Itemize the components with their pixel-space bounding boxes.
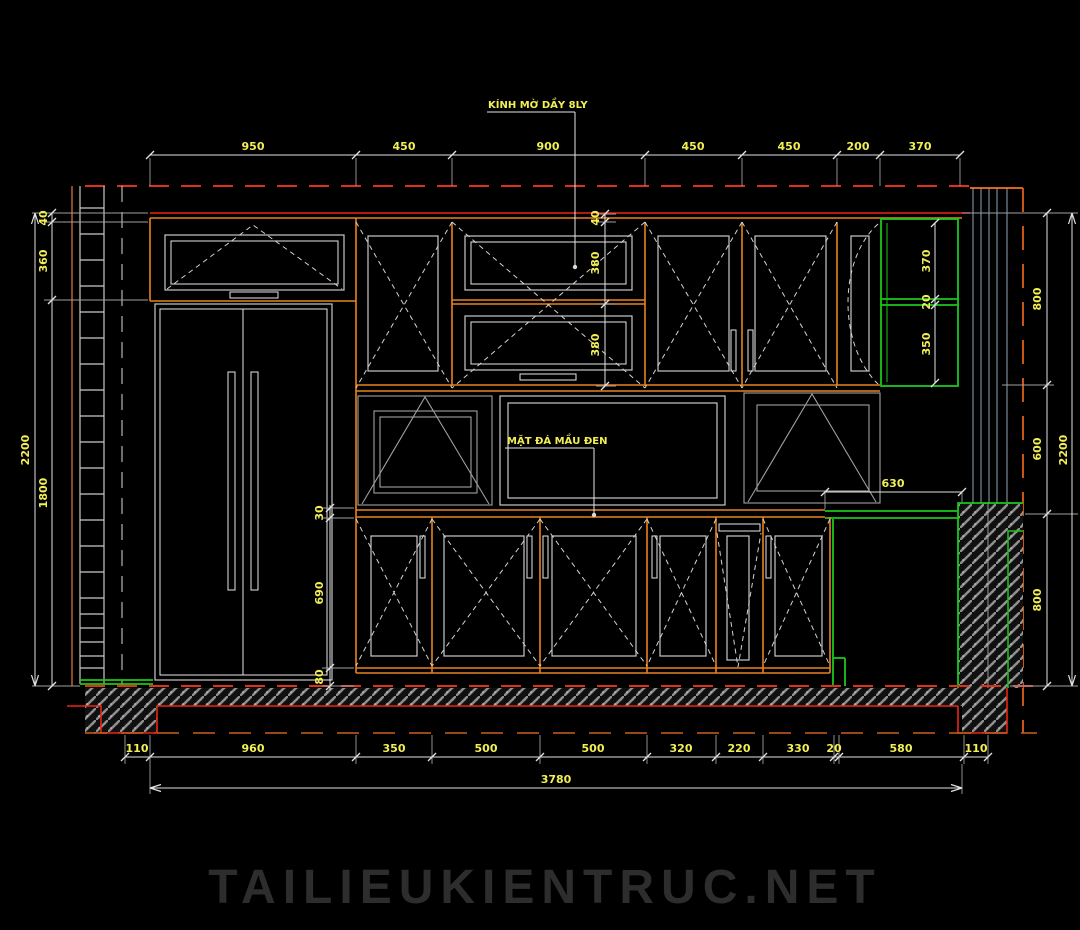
left-dimension-chain: 40 360 1800 2200: [19, 209, 148, 690]
door-handle: [228, 372, 235, 590]
green-base-corner: [833, 519, 845, 686]
dim-label: 600: [1031, 437, 1044, 460]
pullout-basket-220: [717, 524, 761, 667]
top-dimension-chain: 950 450 900 450 450 200 370: [146, 140, 964, 186]
door-handle: [719, 524, 760, 531]
base-height-dims: 30 690 80: [313, 504, 354, 690]
dim-label: 450: [682, 140, 705, 153]
wall-hatch-rungs: [80, 208, 104, 668]
door-handle: [520, 374, 576, 380]
dim-label: 500: [582, 742, 605, 755]
dim-label: 40: [589, 210, 602, 226]
dim-label: 360: [37, 249, 50, 272]
wall-edge-lines: [85, 186, 1023, 733]
screenshot-root: 370 20 350 630: [0, 0, 1080, 930]
base-door-320: [647, 519, 716, 666]
stone-note-label: MẶT ĐÁ MẦU ĐEN: [507, 433, 607, 447]
total-width-dimension: 3780: [150, 764, 962, 794]
dim-label: 350: [383, 742, 406, 755]
tall-cabinet: [155, 304, 332, 680]
dim-label: 900: [537, 140, 560, 153]
bottom-dimension-chain: 110 960 350 500 500 320 220 330 20 580 1…: [121, 735, 992, 764]
door-handle: [251, 372, 258, 590]
dim-label: 800: [1031, 588, 1044, 611]
open-shelf-unit: 370 20 350: [881, 219, 958, 387]
dim-label: 2200: [1057, 434, 1070, 465]
frosted-flipup-door-left: [165, 225, 344, 298]
left-wall-section: [72, 186, 153, 686]
door-handle: [748, 330, 753, 371]
dim-label: 580: [890, 742, 913, 755]
backsplash-panels: [358, 393, 880, 505]
door-handle: [652, 536, 657, 578]
wall-door-450-left: [356, 222, 452, 388]
base-door-350: [356, 519, 432, 666]
dim-label: 950: [242, 140, 265, 153]
door-handle: [731, 330, 736, 371]
dim-label: 380: [589, 251, 602, 274]
dim-label: 40: [37, 210, 50, 226]
base-door-500-left: [432, 519, 540, 666]
floor-slab: [67, 686, 1040, 733]
door-handle: [230, 292, 278, 298]
door-handle: [766, 536, 771, 578]
base-cabinets: [356, 517, 845, 686]
dim-label: 690: [313, 581, 326, 604]
kitchen-elevation-drawing: 370 20 350 630: [0, 0, 1080, 930]
dim-label: 220: [728, 742, 751, 755]
dim-label: 200: [847, 140, 870, 153]
dim-label: 800: [1031, 287, 1044, 310]
door-handle: [543, 536, 548, 578]
dim-label: 80: [313, 669, 326, 685]
dim-label: 320: [670, 742, 693, 755]
duct-edge-lines: [973, 188, 1007, 503]
dim-label: 450: [393, 140, 416, 153]
frosted-flipup-doors-center: [452, 222, 645, 388]
dim-label: 20: [826, 742, 842, 755]
countertop: [356, 510, 958, 518]
glass-note-label: KÍNH MỜ DẦY 8LY: [488, 97, 588, 111]
watermark-text: TAILIEUKIENTRUC.NET: [208, 861, 881, 914]
door-handle: [527, 536, 532, 578]
wall-doors-450-right: [645, 222, 837, 388]
dim-label: 110: [126, 742, 149, 755]
dim-label: 1800: [37, 477, 50, 508]
dim-label: 20: [920, 294, 933, 310]
dim-label: 370: [920, 249, 933, 272]
cabinet-top-rails: [150, 213, 970, 218]
counter-depth-dim: 630: [821, 477, 966, 509]
shelf-height-dims: 370 20 350: [920, 219, 939, 387]
side-column: [958, 503, 1023, 688]
base-door-500-right: [540, 519, 647, 666]
dim-label: 3780: [541, 773, 572, 786]
glass-note: KÍNH MỜ DẦY 8LY: [487, 97, 588, 269]
dim-label: 2200: [19, 434, 32, 465]
dim-label: 110: [965, 742, 988, 755]
dim-label: 350: [920, 332, 933, 355]
base-door-330: [763, 519, 830, 666]
dim-label: 630: [882, 477, 905, 490]
dim-label: 380: [589, 333, 602, 356]
dim-label: 330: [787, 742, 810, 755]
dim-label: 30: [313, 505, 326, 521]
dim-label: 450: [778, 140, 801, 153]
wall-door-200: [848, 224, 878, 384]
dim-label: 370: [909, 140, 932, 153]
dim-label: 960: [242, 742, 265, 755]
door-handle: [420, 536, 425, 578]
dim-label: 500: [475, 742, 498, 755]
